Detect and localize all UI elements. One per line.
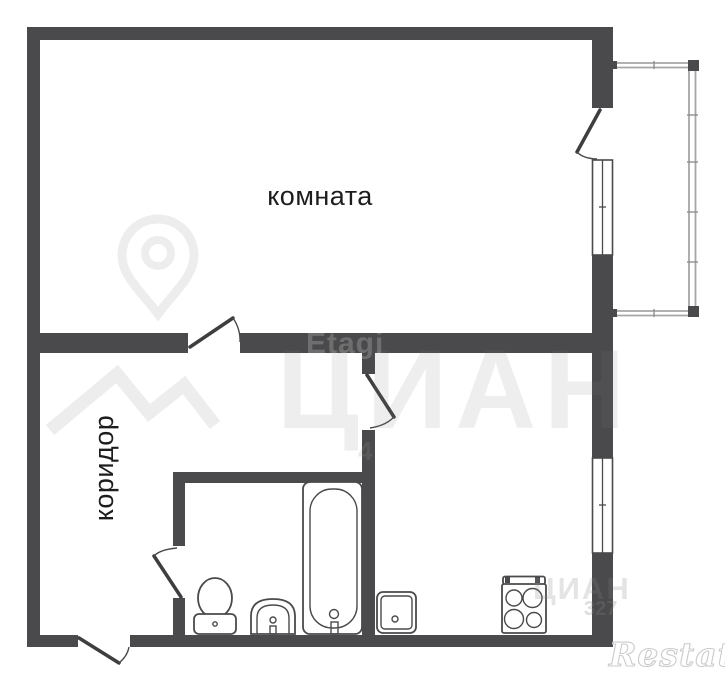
balcony-post-top <box>688 60 699 71</box>
watermark-restate-logo: Restate <box>608 635 725 674</box>
balcony-door-swing <box>577 152 597 159</box>
balcony-door <box>577 110 600 159</box>
floor-plan-canvas: комната коридор ЦИАН Etagi 4 ЦИАН 327 Re… <box>0 0 725 674</box>
toilet-icon <box>194 578 236 634</box>
location-pin-hole <box>145 240 171 266</box>
bathroom-sink-icon <box>251 599 295 634</box>
wall-top <box>27 27 613 40</box>
stove-handle-left <box>505 577 510 583</box>
entrance-door-leaf <box>79 638 119 663</box>
kitchen-sink-outer <box>377 592 416 633</box>
kitchen-sink-icon <box>377 592 416 633</box>
room-door-leaf <box>190 318 233 347</box>
entrance-door-swing <box>119 647 129 663</box>
floor-plan: комната коридор ЦИАН Etagi 4 ЦИАН 327 Re… <box>0 0 725 674</box>
wall-bottom-left-of-entrance <box>27 635 78 647</box>
balcony-anchor-top <box>611 61 617 69</box>
balcony-door-leaf <box>577 110 600 152</box>
room-door <box>190 318 240 347</box>
wall-right-upper <box>592 27 613 108</box>
watermark-zigzag <box>50 374 215 430</box>
wall-room-divider-left <box>38 333 188 353</box>
wall-bathroom-left-lower <box>173 598 185 635</box>
toilet-tank <box>194 614 236 634</box>
room-window <box>593 160 613 255</box>
balcony-railing <box>611 60 699 317</box>
bathtub-outer <box>303 482 362 634</box>
kitchen-window <box>593 458 613 553</box>
room-door-swing <box>233 318 240 342</box>
toilet-bowl <box>198 578 232 618</box>
room-label: комната <box>267 181 373 211</box>
watermark-cian-digits: 327 <box>584 598 617 620</box>
wall-bottom-right-of-entrance <box>130 635 613 647</box>
entrance-door <box>79 638 129 663</box>
wall-bathroom-left-upper <box>173 483 185 546</box>
watermark-partial-digit: 4 <box>358 436 373 466</box>
watermark-etagi: Etagi <box>306 327 384 360</box>
bathroom-door-swing <box>154 548 177 556</box>
bathtub-icon <box>303 482 362 634</box>
balcony-post-bottom <box>688 306 699 317</box>
corridor-label: коридор <box>89 415 119 522</box>
balcony-anchor-bottom <box>611 309 617 317</box>
bathroom-door-leaf <box>154 556 181 597</box>
bathroom-door <box>154 548 181 597</box>
